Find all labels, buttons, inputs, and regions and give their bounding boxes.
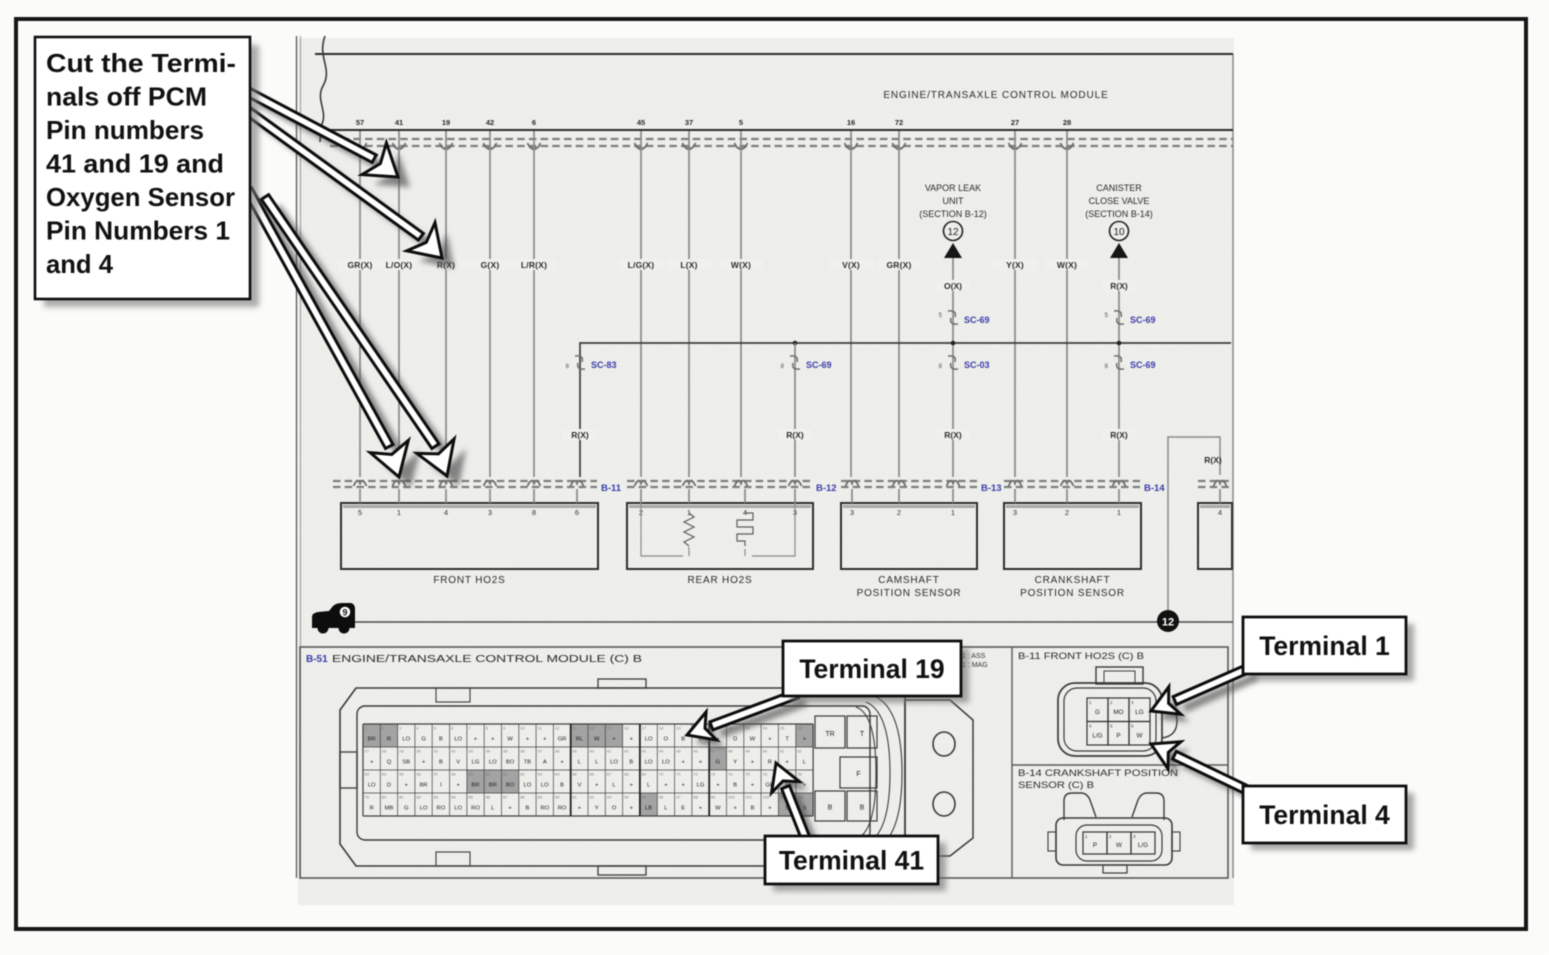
svg-text:TR: TR <box>825 731 834 738</box>
svg-text:26: 26 <box>797 726 802 731</box>
svg-text:O: O <box>612 806 617 812</box>
svg-text:L/R(X): L/R(X) <box>521 260 547 270</box>
svg-text:(SECTION B-12): (SECTION B-12) <box>919 209 987 219</box>
svg-text:R: R <box>370 806 374 812</box>
svg-text:R(X): R(X) <box>944 430 962 440</box>
svg-text:SC-69: SC-69 <box>806 360 832 370</box>
svg-text:Terminal 41: Terminal 41 <box>779 846 924 876</box>
svg-text:65: 65 <box>572 772 577 777</box>
svg-text:3: 3 <box>850 508 854 517</box>
svg-text:LO: LO <box>645 737 653 743</box>
svg-text:+: + <box>595 783 599 789</box>
svg-text:B-11 FRONT HO2S (C) B: B-11 FRONT HO2S (C) B <box>1018 651 1144 661</box>
svg-text:45: 45 <box>676 749 681 754</box>
svg-text:LO: LO <box>610 760 618 766</box>
svg-text:89: 89 <box>538 795 543 800</box>
svg-text:ENGINE/TRANSAXLE CONTROL MODUL: ENGINE/TRANSAXLE CONTROL MODULE (C) B <box>332 654 642 665</box>
svg-text:73: 73 <box>711 772 716 777</box>
svg-text:1: 1 <box>397 508 401 517</box>
svg-text:94: 94 <box>624 795 629 800</box>
svg-text:R(X): R(X) <box>1110 281 1128 291</box>
svg-text:80: 80 <box>382 795 387 800</box>
svg-text:TB: TB <box>524 760 532 766</box>
svg-text:85: 85 <box>468 795 473 800</box>
svg-text:41: 41 <box>395 118 403 127</box>
svg-text:W: W <box>594 737 600 743</box>
svg-text:RO: RO <box>558 806 567 812</box>
svg-text:B: B <box>733 783 737 789</box>
svg-text:Terminal 19: Terminal 19 <box>799 654 944 684</box>
svg-text:46: 46 <box>693 749 698 754</box>
svg-text:56: 56 <box>416 772 421 777</box>
svg-text:68: 68 <box>624 772 629 777</box>
svg-text:4: 4 <box>1218 508 1222 517</box>
svg-text:E: E <box>681 806 685 812</box>
svg-text:98: 98 <box>693 795 698 800</box>
svg-text:L/O(X): L/O(X) <box>386 260 413 270</box>
svg-text:51: 51 <box>780 749 785 754</box>
svg-text:Terminal 4: Terminal 4 <box>1259 800 1390 830</box>
svg-text:POSITION SENSOR: POSITION SENSOR <box>857 588 962 599</box>
svg-text:Terminal 1: Terminal 1 <box>1259 631 1390 661</box>
svg-text:B: B <box>751 806 755 812</box>
svg-text:SENSOR (C) B: SENSOR (C) B <box>1018 780 1094 790</box>
svg-text:B: B <box>860 805 865 812</box>
svg-text:58: 58 <box>451 772 456 777</box>
svg-text:16: 16 <box>624 726 629 731</box>
svg-text:12: 12 <box>947 227 959 238</box>
svg-text:38: 38 <box>555 749 560 754</box>
svg-text:R(X): R(X) <box>786 430 804 440</box>
svg-text:B: B <box>560 783 564 789</box>
svg-text:SC-03: SC-03 <box>964 360 990 370</box>
svg-text:W(X): W(X) <box>731 260 751 270</box>
svg-text:Pin Numbers 1: Pin Numbers 1 <box>46 216 230 246</box>
svg-text:G: G <box>404 806 409 812</box>
svg-text:B: B <box>439 737 443 743</box>
svg-text:93: 93 <box>607 795 612 800</box>
svg-text:72: 72 <box>895 118 903 127</box>
svg-text:15: 15 <box>607 726 612 731</box>
svg-text:13: 13 <box>572 726 577 731</box>
svg-text:6: 6 <box>532 118 536 127</box>
svg-text:99: 99 <box>711 795 716 800</box>
svg-text:CRANKSHAFT: CRANKSHAFT <box>1035 575 1111 586</box>
svg-text:61: 61 <box>503 772 508 777</box>
svg-text:72: 72 <box>693 772 698 777</box>
svg-text:W: W <box>507 737 513 743</box>
svg-text:57: 57 <box>434 772 439 777</box>
svg-text:27: 27 <box>365 749 370 754</box>
svg-text:LO: LO <box>489 760 497 766</box>
svg-text:27: 27 <box>1011 118 1019 127</box>
svg-text:49: 49 <box>745 749 750 754</box>
svg-text:5: 5 <box>739 118 743 127</box>
svg-text:LO: LO <box>541 783 549 789</box>
svg-text:BR: BR <box>368 737 376 743</box>
svg-text:3: 3 <box>1013 508 1017 517</box>
svg-text:82: 82 <box>416 795 421 800</box>
svg-text:B-51: B-51 <box>306 654 328 665</box>
svg-text:52: 52 <box>797 749 802 754</box>
svg-text:B: B <box>439 760 443 766</box>
svg-text:Cut the Termi-: Cut the Termi- <box>46 48 236 78</box>
svg-text:36: 36 <box>520 749 525 754</box>
svg-text:Pin numbers: Pin numbers <box>46 115 204 145</box>
svg-text:79: 79 <box>365 795 370 800</box>
svg-text:43: 43 <box>642 749 647 754</box>
svg-text:55: 55 <box>399 772 404 777</box>
svg-text:POSITION SENSOR: POSITION SENSOR <box>1020 588 1125 599</box>
svg-text:+: + <box>578 806 582 812</box>
svg-text:P: P <box>1116 733 1120 740</box>
svg-text:41 and 19 and: 41 and 19 and <box>46 149 224 179</box>
svg-text:GR(X): GR(X) <box>886 260 911 270</box>
svg-text:V: V <box>577 783 581 789</box>
svg-text:76: 76 <box>763 772 768 777</box>
svg-text:Y: Y <box>733 760 737 766</box>
svg-text:42: 42 <box>486 118 494 127</box>
svg-text:10: 10 <box>1113 227 1125 238</box>
svg-text:12: 12 <box>555 726 560 731</box>
svg-text:B: B <box>681 737 685 743</box>
svg-text:W(X): W(X) <box>1057 260 1077 270</box>
svg-text:FRONT HO2S: FRONT HO2S <box>433 575 505 586</box>
svg-text:SB: SB <box>402 760 410 766</box>
svg-text:CAMSHAFT: CAMSHAFT <box>878 575 939 586</box>
svg-text:63: 63 <box>538 772 543 777</box>
svg-text:G: G <box>1095 709 1100 716</box>
svg-text:RO: RO <box>437 806 446 812</box>
svg-text:RO: RO <box>471 806 480 812</box>
svg-text:44: 44 <box>659 749 664 754</box>
svg-text:LG: LG <box>697 783 705 789</box>
svg-text:LO: LO <box>645 760 653 766</box>
svg-text:+: + <box>664 783 668 789</box>
svg-text:29: 29 <box>399 749 404 754</box>
svg-text:17: 17 <box>642 726 647 731</box>
svg-text:CLOSE VALVE: CLOSE VALVE <box>1089 196 1150 206</box>
svg-text:LO: LO <box>368 783 376 789</box>
svg-text:G: G <box>716 760 721 766</box>
svg-text:92: 92 <box>590 795 595 800</box>
svg-text:66: 66 <box>590 772 595 777</box>
svg-text:LG: LG <box>1135 709 1144 716</box>
svg-text:37: 37 <box>538 749 543 754</box>
svg-text:W: W <box>715 806 721 812</box>
svg-text:V(X): V(X) <box>842 260 860 270</box>
svg-text:P: P <box>1093 842 1097 849</box>
svg-text:B-12: B-12 <box>816 483 837 494</box>
svg-text:V: V <box>456 760 460 766</box>
svg-text:+: + <box>716 783 720 789</box>
svg-text:97: 97 <box>676 795 681 800</box>
svg-text:84: 84 <box>451 795 456 800</box>
svg-text:LO: LO <box>454 806 462 812</box>
svg-text:78: 78 <box>797 772 802 777</box>
svg-text:32: 32 <box>451 749 456 754</box>
svg-text:L/G: L/G <box>1092 733 1102 740</box>
svg-text:GR: GR <box>558 737 567 743</box>
svg-text:90: 90 <box>555 795 560 800</box>
svg-text:1: 1 <box>951 508 955 517</box>
svg-text:R: R <box>387 737 391 743</box>
svg-text:100: 100 <box>728 795 735 800</box>
svg-text:R(X): R(X) <box>1204 455 1222 465</box>
svg-text:Q: Q <box>387 760 392 766</box>
svg-text:25: 25 <box>780 726 785 731</box>
svg-text:MB: MB <box>385 806 394 812</box>
svg-text:B-11: B-11 <box>601 483 622 494</box>
svg-text:83: 83 <box>434 795 439 800</box>
svg-text:102: 102 <box>763 795 770 800</box>
svg-text:2: 2 <box>1065 508 1069 517</box>
svg-text:48: 48 <box>728 749 733 754</box>
svg-text:62: 62 <box>520 772 525 777</box>
svg-text:CANISTER: CANISTER <box>1096 183 1142 193</box>
svg-text:W: W <box>1116 842 1122 849</box>
svg-text:SC-69: SC-69 <box>1130 315 1156 325</box>
svg-text:101: 101 <box>745 795 752 800</box>
svg-text:LO: LO <box>420 806 428 812</box>
svg-text:64: 64 <box>555 772 560 777</box>
svg-text:74: 74 <box>728 772 733 777</box>
svg-text:nals off PCM: nals off PCM <box>46 82 207 112</box>
svg-text:A: A <box>543 760 547 766</box>
svg-text:31: 31 <box>434 749 439 754</box>
svg-text:(SECTION B-14): (SECTION B-14) <box>1085 209 1153 219</box>
svg-text:1: 1 <box>687 508 691 517</box>
svg-text:60: 60 <box>486 772 491 777</box>
svg-text:88: 88 <box>520 795 525 800</box>
svg-text:69: 69 <box>642 772 647 777</box>
svg-text:14: 14 <box>590 726 595 731</box>
svg-text:W: W <box>1137 733 1143 740</box>
svg-text:O: O <box>664 737 669 743</box>
svg-text:28: 28 <box>382 749 387 754</box>
svg-text:B-13: B-13 <box>981 483 1002 494</box>
svg-text:VAPOR LEAK: VAPOR LEAK <box>925 183 981 193</box>
svg-text:50: 50 <box>763 749 768 754</box>
svg-text:Oxygen Sensor: Oxygen Sensor <box>46 182 235 212</box>
svg-text:B-14 CRANKSHAFT POSITION: B-14 CRANKSHAFT POSITION <box>1018 768 1178 778</box>
svg-text:and 4: and 4 <box>46 249 114 279</box>
svg-text:Y(X): Y(X) <box>1006 260 1024 270</box>
svg-text:LB: LB <box>645 806 652 812</box>
svg-text:59: 59 <box>468 772 473 777</box>
svg-text:BO: BO <box>506 783 515 789</box>
svg-text:SC-83: SC-83 <box>591 360 617 370</box>
svg-text:R: R <box>768 760 772 766</box>
svg-text:28: 28 <box>1063 118 1071 127</box>
svg-text:39: 39 <box>572 749 577 754</box>
svg-text:O(X): O(X) <box>944 281 962 291</box>
svg-text:+: + <box>734 806 738 812</box>
svg-text:GR(X): GR(X) <box>347 260 372 270</box>
svg-text:47: 47 <box>711 749 716 754</box>
svg-text:53: 53 <box>365 772 370 777</box>
svg-text:MO: MO <box>1113 709 1123 716</box>
svg-text:42: 42 <box>624 749 629 754</box>
svg-text:41: 41 <box>607 749 612 754</box>
svg-text:19: 19 <box>676 726 681 731</box>
svg-text:L/G: L/G <box>1138 842 1148 849</box>
svg-text:4: 4 <box>444 508 448 517</box>
svg-text:45: 45 <box>637 118 645 127</box>
svg-text:LO: LO <box>524 783 532 789</box>
svg-text:RL: RL <box>576 737 584 743</box>
svg-text:8: 8 <box>532 508 536 517</box>
svg-text:R(X): R(X) <box>1110 430 1128 440</box>
svg-text:T: T <box>860 731 865 738</box>
svg-text:91: 91 <box>572 795 577 800</box>
svg-text:71: 71 <box>676 772 681 777</box>
svg-text:B: B <box>828 805 833 812</box>
svg-text:18: 18 <box>659 726 664 731</box>
svg-text:19: 19 <box>442 118 450 127</box>
svg-text:95: 95 <box>642 795 647 800</box>
svg-text:D: D <box>387 783 391 789</box>
svg-text:40: 40 <box>590 749 595 754</box>
svg-text:10: 10 <box>520 726 525 731</box>
svg-text:BR: BR <box>471 783 479 789</box>
svg-text:RO: RO <box>540 806 549 812</box>
svg-text:UNIT: UNIT <box>943 196 964 206</box>
svg-text:D: D <box>733 737 737 743</box>
svg-text:L/G(X): L/G(X) <box>628 260 655 270</box>
svg-text:6: 6 <box>575 508 579 517</box>
svg-text:+: + <box>526 737 530 743</box>
svg-text:24: 24 <box>763 726 768 731</box>
svg-text:+: + <box>803 737 807 743</box>
svg-text:87: 87 <box>503 795 508 800</box>
svg-text:REAR HO2S: REAR HO2S <box>688 575 753 586</box>
svg-text:57: 57 <box>356 118 364 127</box>
svg-text:1: 1 <box>1117 508 1121 517</box>
svg-text:+: + <box>370 760 374 766</box>
svg-text:70: 70 <box>659 772 664 777</box>
svg-text:W: W <box>750 737 756 743</box>
svg-text:BR: BR <box>420 783 428 789</box>
svg-text:12: 12 <box>1162 617 1174 629</box>
svg-text:BO: BO <box>506 760 515 766</box>
svg-text:34: 34 <box>486 749 491 754</box>
svg-text:81: 81 <box>399 795 404 800</box>
svg-text:B-14: B-14 <box>1144 483 1165 494</box>
svg-text:B: B <box>629 760 633 766</box>
svg-text:35: 35 <box>503 749 508 754</box>
svg-text:86: 86 <box>486 795 491 800</box>
svg-text:75: 75 <box>745 772 750 777</box>
svg-text:G: G <box>421 737 426 743</box>
svg-text:SC-69: SC-69 <box>1130 360 1156 370</box>
svg-text:LG: LG <box>472 760 480 766</box>
svg-text:SC-69: SC-69 <box>964 315 990 325</box>
svg-text:B: B <box>525 806 529 812</box>
svg-text:3: 3 <box>488 508 492 517</box>
svg-text:G(X): G(X) <box>481 260 500 270</box>
svg-text:R(X): R(X) <box>571 430 589 440</box>
svg-text:F: F <box>856 771 860 778</box>
svg-text:16: 16 <box>847 118 855 127</box>
svg-text:33: 33 <box>468 749 473 754</box>
svg-text:2: 2 <box>897 508 901 517</box>
svg-text:37: 37 <box>685 118 693 127</box>
svg-text:67: 67 <box>607 772 612 777</box>
svg-text:+: + <box>682 760 686 766</box>
svg-text:T: T <box>785 737 789 743</box>
svg-text:96: 96 <box>659 795 664 800</box>
svg-text:LO: LO <box>402 737 410 743</box>
svg-text:LO: LO <box>662 760 670 766</box>
svg-text:ENGINE/TRANSAXLE CONTROL MODUL: ENGINE/TRANSAXLE CONTROL MODULE <box>883 90 1108 101</box>
svg-text:Y: Y <box>595 806 599 812</box>
svg-text:54: 54 <box>382 772 387 777</box>
svg-text:+: + <box>682 783 686 789</box>
svg-text:5: 5 <box>358 508 362 517</box>
svg-text:30: 30 <box>416 749 421 754</box>
svg-text:BR: BR <box>489 783 497 789</box>
svg-text:L(X): L(X) <box>680 260 697 270</box>
svg-text:LO: LO <box>454 737 462 743</box>
svg-text:9: 9 <box>342 608 347 618</box>
svg-text:+: + <box>457 783 461 789</box>
